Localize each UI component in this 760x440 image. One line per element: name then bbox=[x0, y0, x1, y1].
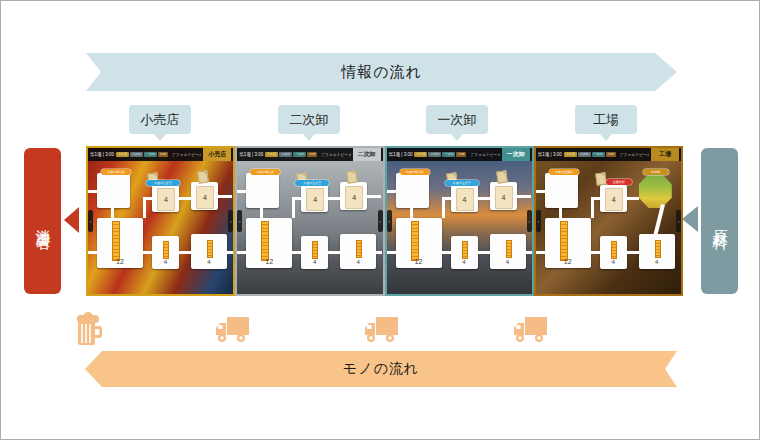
mini-chip: 一次卸 bbox=[442, 152, 455, 157]
stock-count: 12 bbox=[545, 258, 591, 265]
header-mini-chips: 小売店二次卸一次卸工場 bbox=[116, 152, 168, 157]
mini-chip: 一次卸 bbox=[144, 152, 157, 157]
arrow-to-consumer bbox=[64, 207, 79, 233]
connector-arrow bbox=[88, 251, 97, 254]
mini-chip: 一次卸 bbox=[592, 152, 605, 157]
memo-icon bbox=[346, 170, 358, 183]
mini-chip: 小売店 bbox=[116, 152, 129, 157]
beer-stack bbox=[506, 240, 512, 258]
connector-arrow bbox=[526, 251, 532, 254]
mini-chip: 工場 bbox=[456, 152, 466, 157]
connector-line bbox=[442, 197, 445, 218]
order-slip-card: 4 bbox=[456, 188, 474, 211]
stock-count: 12 bbox=[396, 258, 442, 265]
order-input-box bbox=[545, 173, 578, 208]
memo-icon bbox=[595, 172, 607, 185]
company-name-label: デフォルトビール会社 bbox=[470, 152, 499, 157]
shipping-count: 4 bbox=[639, 259, 675, 265]
station-label-text: 工場 bbox=[593, 111, 619, 129]
order-quantity-pill: 今週の発注数 bbox=[101, 169, 131, 175]
right-drawer-tab: › bbox=[676, 210, 681, 232]
order-slip-card: 4 bbox=[196, 186, 214, 209]
beer-stack bbox=[611, 241, 617, 259]
stock-gauge bbox=[261, 221, 269, 261]
mini-chip: 小売店 bbox=[414, 152, 427, 157]
beer-stack bbox=[163, 241, 169, 259]
truck-icon bbox=[213, 315, 251, 345]
connector-arrow bbox=[591, 251, 600, 254]
station-label-text: 小売店 bbox=[141, 111, 180, 129]
connector-arrow bbox=[143, 251, 152, 254]
shipping-count: 4 bbox=[191, 259, 227, 265]
connector-arrow bbox=[218, 195, 232, 198]
station-label-text: 一次卸 bbox=[438, 111, 477, 129]
raw-material-label: 原材料 bbox=[710, 217, 729, 226]
left-drawer-tab: ‹ bbox=[88, 210, 93, 232]
panel-retail: 第1週 | 3:00 小売店二次卸一次卸工場 デフォルトビール会社 小売店 今週… bbox=[86, 146, 235, 296]
connector-arrow bbox=[88, 190, 97, 193]
mini-chip: 一次卸 bbox=[293, 152, 306, 157]
left-drawer-tab: ‹ bbox=[387, 210, 392, 232]
connector-arrow bbox=[179, 251, 191, 254]
incoming-order-pill: 今週の注文書 bbox=[445, 180, 479, 186]
mini-chip: 二次卸 bbox=[279, 152, 292, 157]
company-name-label: デフォルトビール会社 bbox=[620, 152, 649, 157]
raw-material-pill: 原材料 bbox=[643, 169, 669, 175]
callout-pointer bbox=[303, 134, 315, 141]
beer-stack bbox=[655, 240, 661, 258]
header-mini-chips: 小売店二次卸一次卸工場 bbox=[414, 152, 466, 157]
raw-material-box: 原材料 bbox=[701, 148, 738, 294]
supply-chain-diagram: 情報の流れ 小売店 二次卸 一次卸 工場 消費者 原材料 第1週 | 3:00 … bbox=[0, 0, 760, 440]
information-flow-label: 情報の流れ bbox=[341, 63, 422, 82]
production-pill: 生産依頼 bbox=[606, 179, 632, 185]
connector-arrow bbox=[517, 195, 531, 198]
connector-arrow bbox=[478, 197, 490, 200]
shipping-count: 4 bbox=[451, 259, 478, 265]
mini-chip: 工場 bbox=[606, 152, 616, 157]
connector-arrow bbox=[387, 251, 396, 254]
connector-arrow bbox=[376, 251, 382, 254]
truck-icon bbox=[362, 315, 400, 345]
left-drawer-tab: ‹ bbox=[536, 210, 541, 232]
station-label-secondary-wholesaler: 二次卸 bbox=[278, 105, 340, 134]
week-time-label: 第1週 | 3:00 bbox=[538, 152, 562, 157]
shipping-count: 4 bbox=[490, 259, 526, 265]
beer-stack bbox=[356, 240, 362, 258]
connector-arrow bbox=[237, 251, 246, 254]
order-input-box bbox=[246, 173, 279, 208]
consumer-box: 消費者 bbox=[24, 148, 61, 294]
connector-arrow bbox=[328, 197, 340, 200]
header-mini-chips: 小売店二次卸一次卸工場 bbox=[265, 152, 317, 157]
consumer-label: 消費者 bbox=[33, 217, 52, 226]
panel-primary-wholesaler: 第1週 | 3:00 小売店二次卸一次卸工場 デフォルトビール会社 一次卸 今週… bbox=[385, 146, 534, 296]
callout-pointer bbox=[451, 134, 463, 141]
connector-arrow bbox=[387, 190, 396, 193]
connector-line bbox=[292, 197, 295, 218]
connector-arrow bbox=[442, 251, 451, 254]
order-quantity-pill: 今週の発注数 bbox=[400, 169, 430, 175]
beer-stack bbox=[462, 241, 468, 259]
connector-arrow bbox=[536, 190, 545, 193]
mini-chip: 二次卸 bbox=[578, 152, 591, 157]
connector-arrow bbox=[627, 197, 639, 200]
arrow-from-raw-material bbox=[682, 206, 698, 232]
mini-chip: 小売店 bbox=[564, 152, 577, 157]
panel-secondary-wholesaler: 第1週 | 3:00 小売店二次卸一次卸工場 デフォルトビール会社 二次卸 今週… bbox=[235, 146, 384, 296]
order-quantity-pill: 今週の発注数 bbox=[250, 169, 280, 175]
game-header-bar: 第1週 | 3:00 小売店二次卸一次卸工場 デフォルトビール会社 小売店 bbox=[88, 148, 233, 161]
mini-chip: 二次卸 bbox=[130, 152, 143, 157]
connector-line bbox=[143, 197, 146, 218]
beer-mug-icon bbox=[75, 312, 102, 346]
connector-line bbox=[591, 197, 594, 218]
week-time-label: 第1週 | 3:00 bbox=[90, 152, 114, 157]
station-chip: 二次卸 bbox=[353, 148, 381, 161]
station-label-text: 二次卸 bbox=[290, 111, 329, 129]
connector-arrow bbox=[627, 251, 639, 254]
shipping-count: 4 bbox=[301, 259, 328, 265]
connector-arrow bbox=[227, 251, 233, 254]
connector-arrow bbox=[478, 251, 490, 254]
company-name-label: デフォルトビール会社 bbox=[172, 152, 201, 157]
memo-icon bbox=[197, 170, 209, 183]
connector-arrow bbox=[536, 251, 545, 254]
order-slip-card: 4 bbox=[157, 188, 175, 211]
game-header-bar: 第1週 | 3:00 小売店二次卸一次卸工場 デフォルトビール会社 二次卸 bbox=[237, 148, 382, 161]
beer-stack bbox=[207, 240, 213, 258]
memo-icon bbox=[496, 170, 508, 183]
mini-chip: 工場 bbox=[307, 152, 317, 157]
raw-material-image bbox=[639, 174, 672, 208]
connector-line bbox=[653, 204, 664, 237]
stock-gauge bbox=[560, 221, 568, 261]
week-time-label: 第1週 | 3:00 bbox=[389, 152, 413, 157]
station-chip: 工場 bbox=[651, 148, 679, 161]
game-header-bar: 第1週 | 3:00 小売店二次卸一次卸工場 デフォルトビール会社 一次卸 bbox=[387, 148, 532, 161]
stock-gauge bbox=[411, 221, 419, 261]
right-drawer-tab: › bbox=[378, 210, 383, 232]
connector-arrow bbox=[237, 190, 246, 193]
mini-chip: 小売店 bbox=[265, 152, 278, 157]
stock-count: 12 bbox=[97, 258, 143, 265]
beer-stack bbox=[312, 241, 318, 259]
incoming-order-pill: 今週の注文書 bbox=[146, 180, 180, 186]
callout-pointer bbox=[154, 134, 166, 141]
order-slip-card: 4 bbox=[495, 186, 513, 209]
shipping-count: 4 bbox=[152, 259, 179, 265]
shipping-count: 4 bbox=[340, 259, 376, 265]
mini-chip: 二次卸 bbox=[428, 152, 441, 157]
station-chip: 小売店 bbox=[203, 148, 231, 161]
stock-gauge bbox=[112, 221, 120, 261]
connector-arrow bbox=[367, 195, 381, 198]
truck-icon bbox=[511, 315, 549, 345]
callout-pointer bbox=[600, 134, 612, 141]
station-label-primary-wholesaler: 一次卸 bbox=[426, 105, 488, 134]
connector-arrow bbox=[179, 197, 191, 200]
incoming-order-pill: 今週の注文書 bbox=[295, 180, 329, 186]
order-slip-card: 4 bbox=[605, 188, 623, 211]
goods-flow-arrow: モノの流れ bbox=[85, 351, 677, 387]
game-panels-row: 第1週 | 3:00 小売店二次卸一次卸工場 デフォルトビール会社 小売店 今週… bbox=[86, 146, 683, 296]
station-label-factory: 工場 bbox=[575, 105, 637, 134]
information-flow-arrow: 情報の流れ bbox=[86, 53, 677, 91]
game-header-bar: 第1週 | 3:00 小売店二次卸一次卸工場 デフォルトビール会社 工場 bbox=[536, 148, 681, 161]
header-mini-chips: 小売店二次卸一次卸工場 bbox=[564, 152, 616, 157]
panel-factory: 第1週 | 3:00 小売店二次卸一次卸工場 デフォルトビール会社 工場 今週の… bbox=[534, 146, 683, 296]
order-input-box bbox=[396, 173, 429, 208]
mini-chip: 工場 bbox=[158, 152, 168, 157]
order-slip-card: 4 bbox=[345, 186, 363, 209]
order-input-box bbox=[97, 173, 130, 208]
stock-count: 12 bbox=[246, 258, 292, 265]
order-slip-card: 4 bbox=[306, 188, 324, 211]
connector-arrow bbox=[328, 251, 340, 254]
company-name-label: デフォルトビール会社 bbox=[321, 152, 350, 157]
week-time-label: 第1週 | 3:00 bbox=[239, 152, 263, 157]
shipping-count: 4 bbox=[600, 259, 627, 265]
station-label-retail: 小売店 bbox=[129, 105, 191, 134]
right-drawer-tab: › bbox=[228, 210, 233, 232]
right-drawer-tab: › bbox=[527, 210, 532, 232]
goods-flow-label: モノの流れ bbox=[343, 360, 419, 378]
order-quantity-pill: 今週の生産数 bbox=[549, 169, 579, 175]
left-drawer-tab: ‹ bbox=[237, 210, 242, 232]
station-chip: 一次卸 bbox=[502, 148, 530, 161]
connector-arrow bbox=[292, 251, 301, 254]
